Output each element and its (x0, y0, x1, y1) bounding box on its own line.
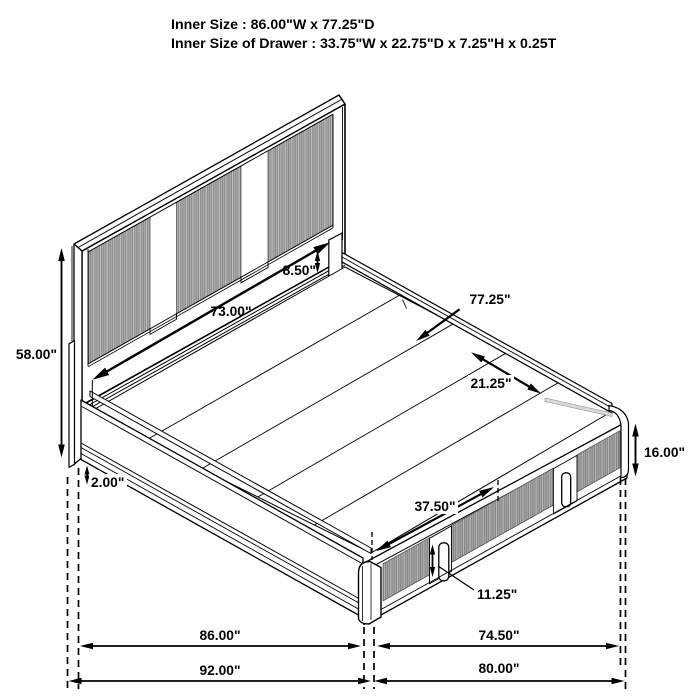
svg-text:Inner Size : 86.00"W x 77.25"D: Inner Size : 86.00"W x 77.25"D (171, 17, 375, 33)
svg-text:86.00": 86.00" (199, 628, 240, 643)
svg-text:Inner Size of Drawer : 33.75"W: Inner Size of Drawer : 33.75"W x 22.75"D… (171, 36, 557, 52)
svg-text:74.50": 74.50" (478, 628, 519, 643)
svg-text:11.25": 11.25" (477, 587, 517, 602)
svg-text:92.00": 92.00" (199, 663, 240, 678)
svg-text:16.00": 16.00" (644, 445, 685, 460)
svg-text:8.50": 8.50" (283, 263, 316, 278)
svg-text:21.25": 21.25" (470, 376, 511, 391)
svg-text:73.00": 73.00" (210, 304, 251, 319)
svg-text:37.50": 37.50" (414, 499, 455, 514)
svg-text:77.25": 77.25" (469, 292, 510, 307)
svg-text:2.00": 2.00" (91, 475, 124, 490)
svg-text:58.00": 58.00" (16, 347, 57, 362)
svg-text:80.00": 80.00" (478, 661, 519, 676)
